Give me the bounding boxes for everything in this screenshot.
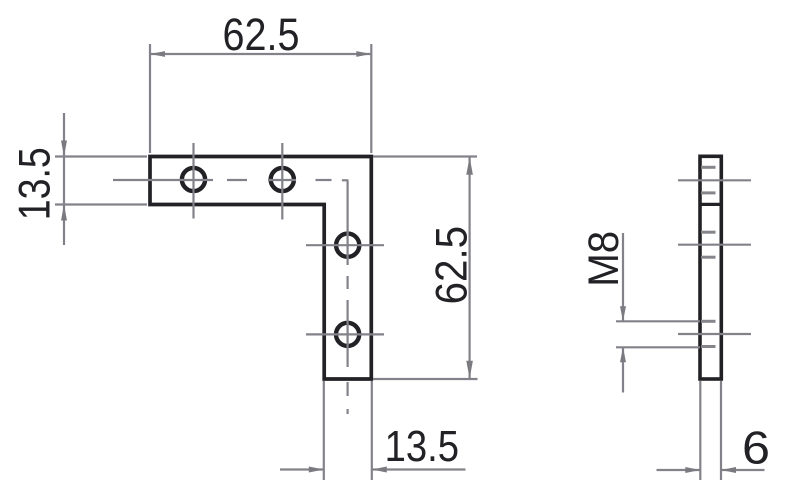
svg-text:13.5: 13.5 [385, 423, 460, 471]
svg-text:62.5: 62.5 [223, 9, 300, 60]
svg-text:62.5: 62.5 [427, 226, 476, 305]
svg-text:6: 6 [742, 422, 770, 474]
svg-text:M8: M8 [581, 231, 628, 287]
svg-text:13.5: 13.5 [11, 147, 60, 220]
